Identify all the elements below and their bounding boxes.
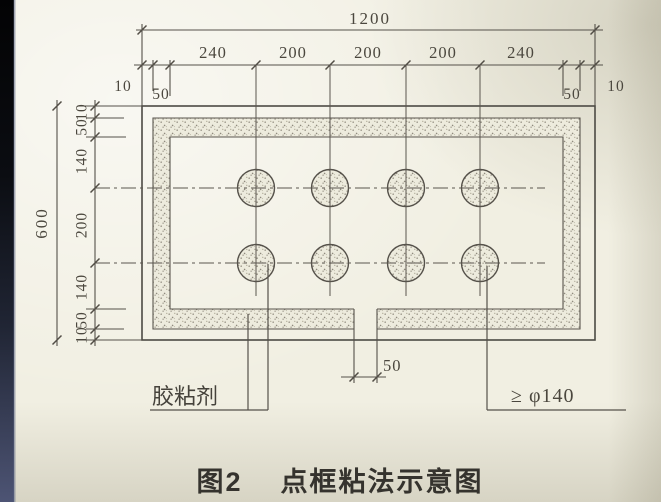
dim-value: 50 xyxy=(73,118,90,136)
adhesive-label: 胶粘剂 xyxy=(152,384,218,409)
dim-value: 240 xyxy=(507,43,535,62)
frame-band-left xyxy=(153,137,170,309)
dim-value: 140 xyxy=(73,148,90,174)
dim-value: 50 xyxy=(563,86,581,103)
dim-value: 200 xyxy=(73,212,90,238)
dim-value: 240 xyxy=(199,43,227,62)
dim-bottom-gap-value: 50 xyxy=(383,356,402,375)
page-left-edge-band xyxy=(0,0,16,502)
dim-value: 200 xyxy=(279,43,307,62)
scanned-page: 1200 240 200 200 200 240 10 50 50 10 600 xyxy=(0,0,661,502)
figure-title: 点框粘法示意图 xyxy=(281,466,484,497)
dim-value: 10 xyxy=(73,326,90,344)
technical-drawing: 1200 240 200 200 200 240 10 50 50 10 600 xyxy=(0,0,661,502)
dim-overall-height-value: 600 xyxy=(32,207,51,239)
dim-value: 10 xyxy=(73,103,90,121)
frame-band-right xyxy=(563,137,580,309)
figure-caption: 图2点框粘法示意图 xyxy=(196,466,483,497)
dim-value: 50 xyxy=(152,86,170,103)
frame-band-bottom-right xyxy=(377,309,580,329)
frame-band-top xyxy=(153,118,580,137)
dim-value: 10 xyxy=(607,78,625,95)
dim-value: 10 xyxy=(114,78,132,95)
dim-value: 200 xyxy=(354,43,382,62)
frame-band-bottom-left xyxy=(153,309,354,329)
dim-value: 140 xyxy=(73,274,90,300)
figure-number: 图2 xyxy=(196,467,242,497)
dot-spec-label: ≥ φ140 xyxy=(511,385,575,407)
dim-value: 50 xyxy=(73,311,90,329)
dim-value: 200 xyxy=(429,43,457,62)
dim-overall-width-value: 1200 xyxy=(349,9,391,28)
